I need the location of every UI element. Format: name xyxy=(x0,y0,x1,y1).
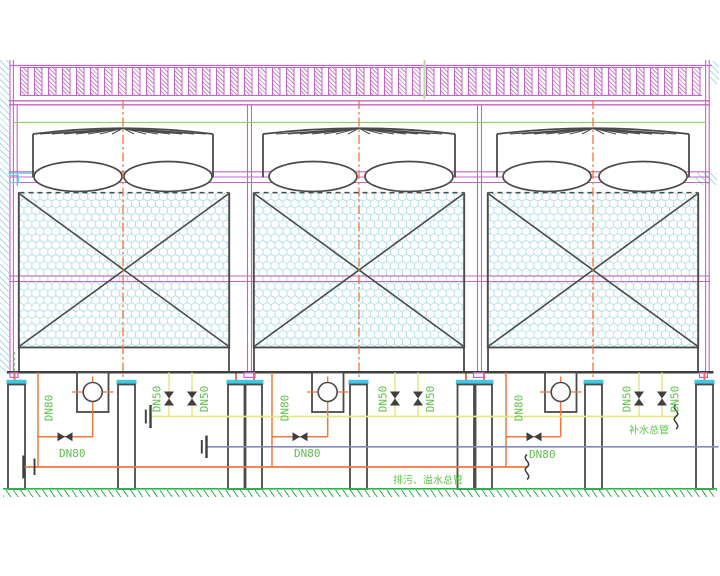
dn50-label-6: DN50 xyxy=(669,386,682,413)
dn80-label-vertical-2: DN80 xyxy=(279,395,292,422)
deck-left-cyan-detail xyxy=(8,173,33,182)
support-legs xyxy=(7,380,715,489)
dn50-label-3: DN50 xyxy=(377,386,390,413)
cooling-tower-elevation-drawing: DN80 DN80 DN80 DN80 DN80 DN80 DN50 DN50 … xyxy=(0,0,720,576)
dn50-label-4: DN50 xyxy=(424,386,437,413)
drawing-canvas: DN80 DN80 DN80 DN80 DN80 DN80 DN50 DN50 … xyxy=(0,0,720,576)
basin xyxy=(7,347,714,372)
dn80-label-horizontal-1: DN80 xyxy=(59,447,86,460)
pump-fittings xyxy=(72,373,582,413)
dn80-label-horizontal-2: DN80 xyxy=(294,447,321,460)
drain-overflow-main-label: 排污、溢水总管 xyxy=(393,474,463,487)
dn50-label-2: DN50 xyxy=(198,386,211,413)
dn80-label-vertical-1: DN80 xyxy=(43,395,56,422)
dn80-label-vertical-3: DN80 xyxy=(513,395,526,422)
makeup-water-main-label: 补水总管 xyxy=(629,424,669,437)
dn80-label-horizontal-3: DN80 xyxy=(529,448,556,461)
fan-blade-radial-lines xyxy=(40,128,676,134)
dn50-label-1: DN50 xyxy=(151,386,164,413)
dn50-label-5: DN50 xyxy=(621,386,634,413)
